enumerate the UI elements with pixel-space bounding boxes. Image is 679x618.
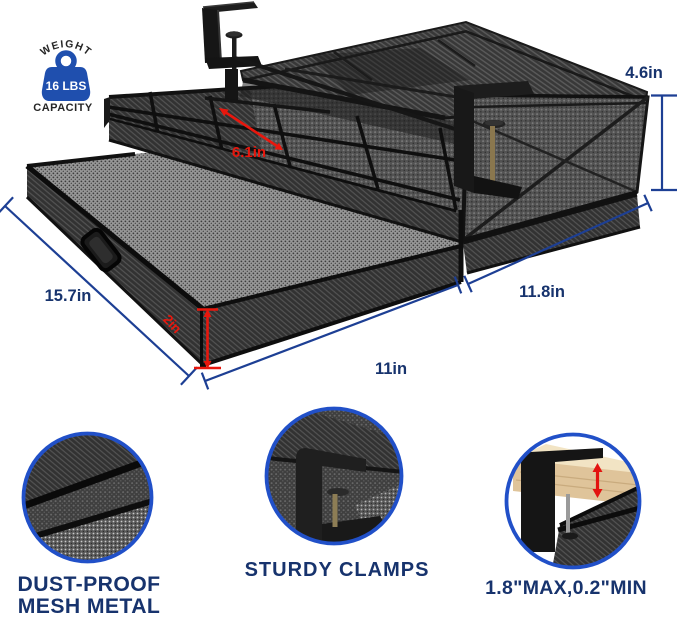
svg-text:4.6in: 4.6in xyxy=(625,64,663,82)
svg-text:15.7in: 15.7in xyxy=(45,287,92,305)
svg-text:16 LBS: 16 LBS xyxy=(46,79,87,93)
svg-text:MESH METAL: MESH METAL xyxy=(18,595,161,618)
svg-text:CAPACITY: CAPACITY xyxy=(33,102,93,114)
svg-text:11in: 11in xyxy=(375,360,407,378)
svg-text:11.8in: 11.8in xyxy=(519,283,565,301)
svg-text:STURDY CLAMPS: STURDY CLAMPS xyxy=(245,559,430,581)
svg-text:1.8"MAX,0.2"MIN: 1.8"MAX,0.2"MIN xyxy=(485,577,647,599)
svg-text:DUST-PROOF: DUST-PROOF xyxy=(18,573,161,596)
svg-text:6.1in: 6.1in xyxy=(232,144,266,161)
